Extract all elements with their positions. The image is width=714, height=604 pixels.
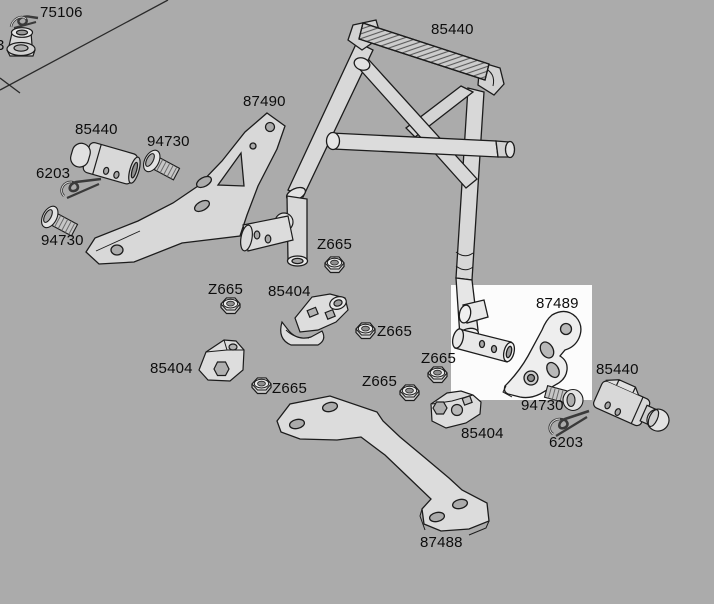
pivot-pin-left-drawing — [239, 213, 293, 252]
mount-85440-right-drawing — [592, 374, 677, 437]
nut-z665-drawing-5 — [400, 385, 419, 401]
screw-94730-top-drawing — [140, 147, 182, 184]
diagram-stage: 75106385440874908544094730620394730Z665Z… — [0, 0, 714, 604]
diagram-canvas — [0, 0, 714, 604]
grommet-drawing — [7, 28, 35, 56]
nut-z665-drawing-3 — [356, 323, 375, 339]
clip-6203-left-drawing — [62, 179, 101, 198]
clamp-85404-top-drawing — [281, 294, 348, 345]
clamp-85404-left-drawing — [199, 340, 244, 381]
nut-z665-drawing-6 — [252, 378, 271, 394]
body-clip-75106-drawing — [11, 16, 38, 28]
clip-6203-right-drawing — [550, 411, 589, 436]
screw-94730-left-drawing — [38, 203, 80, 240]
nut-z665-drawing-4 — [428, 367, 447, 383]
clamp-85404-bottom-drawing — [431, 391, 481, 428]
nut-z665-drawing-1 — [325, 257, 344, 273]
nut-z665-drawing-2 — [221, 298, 240, 314]
mount-85440-left-drawing — [68, 137, 143, 186]
